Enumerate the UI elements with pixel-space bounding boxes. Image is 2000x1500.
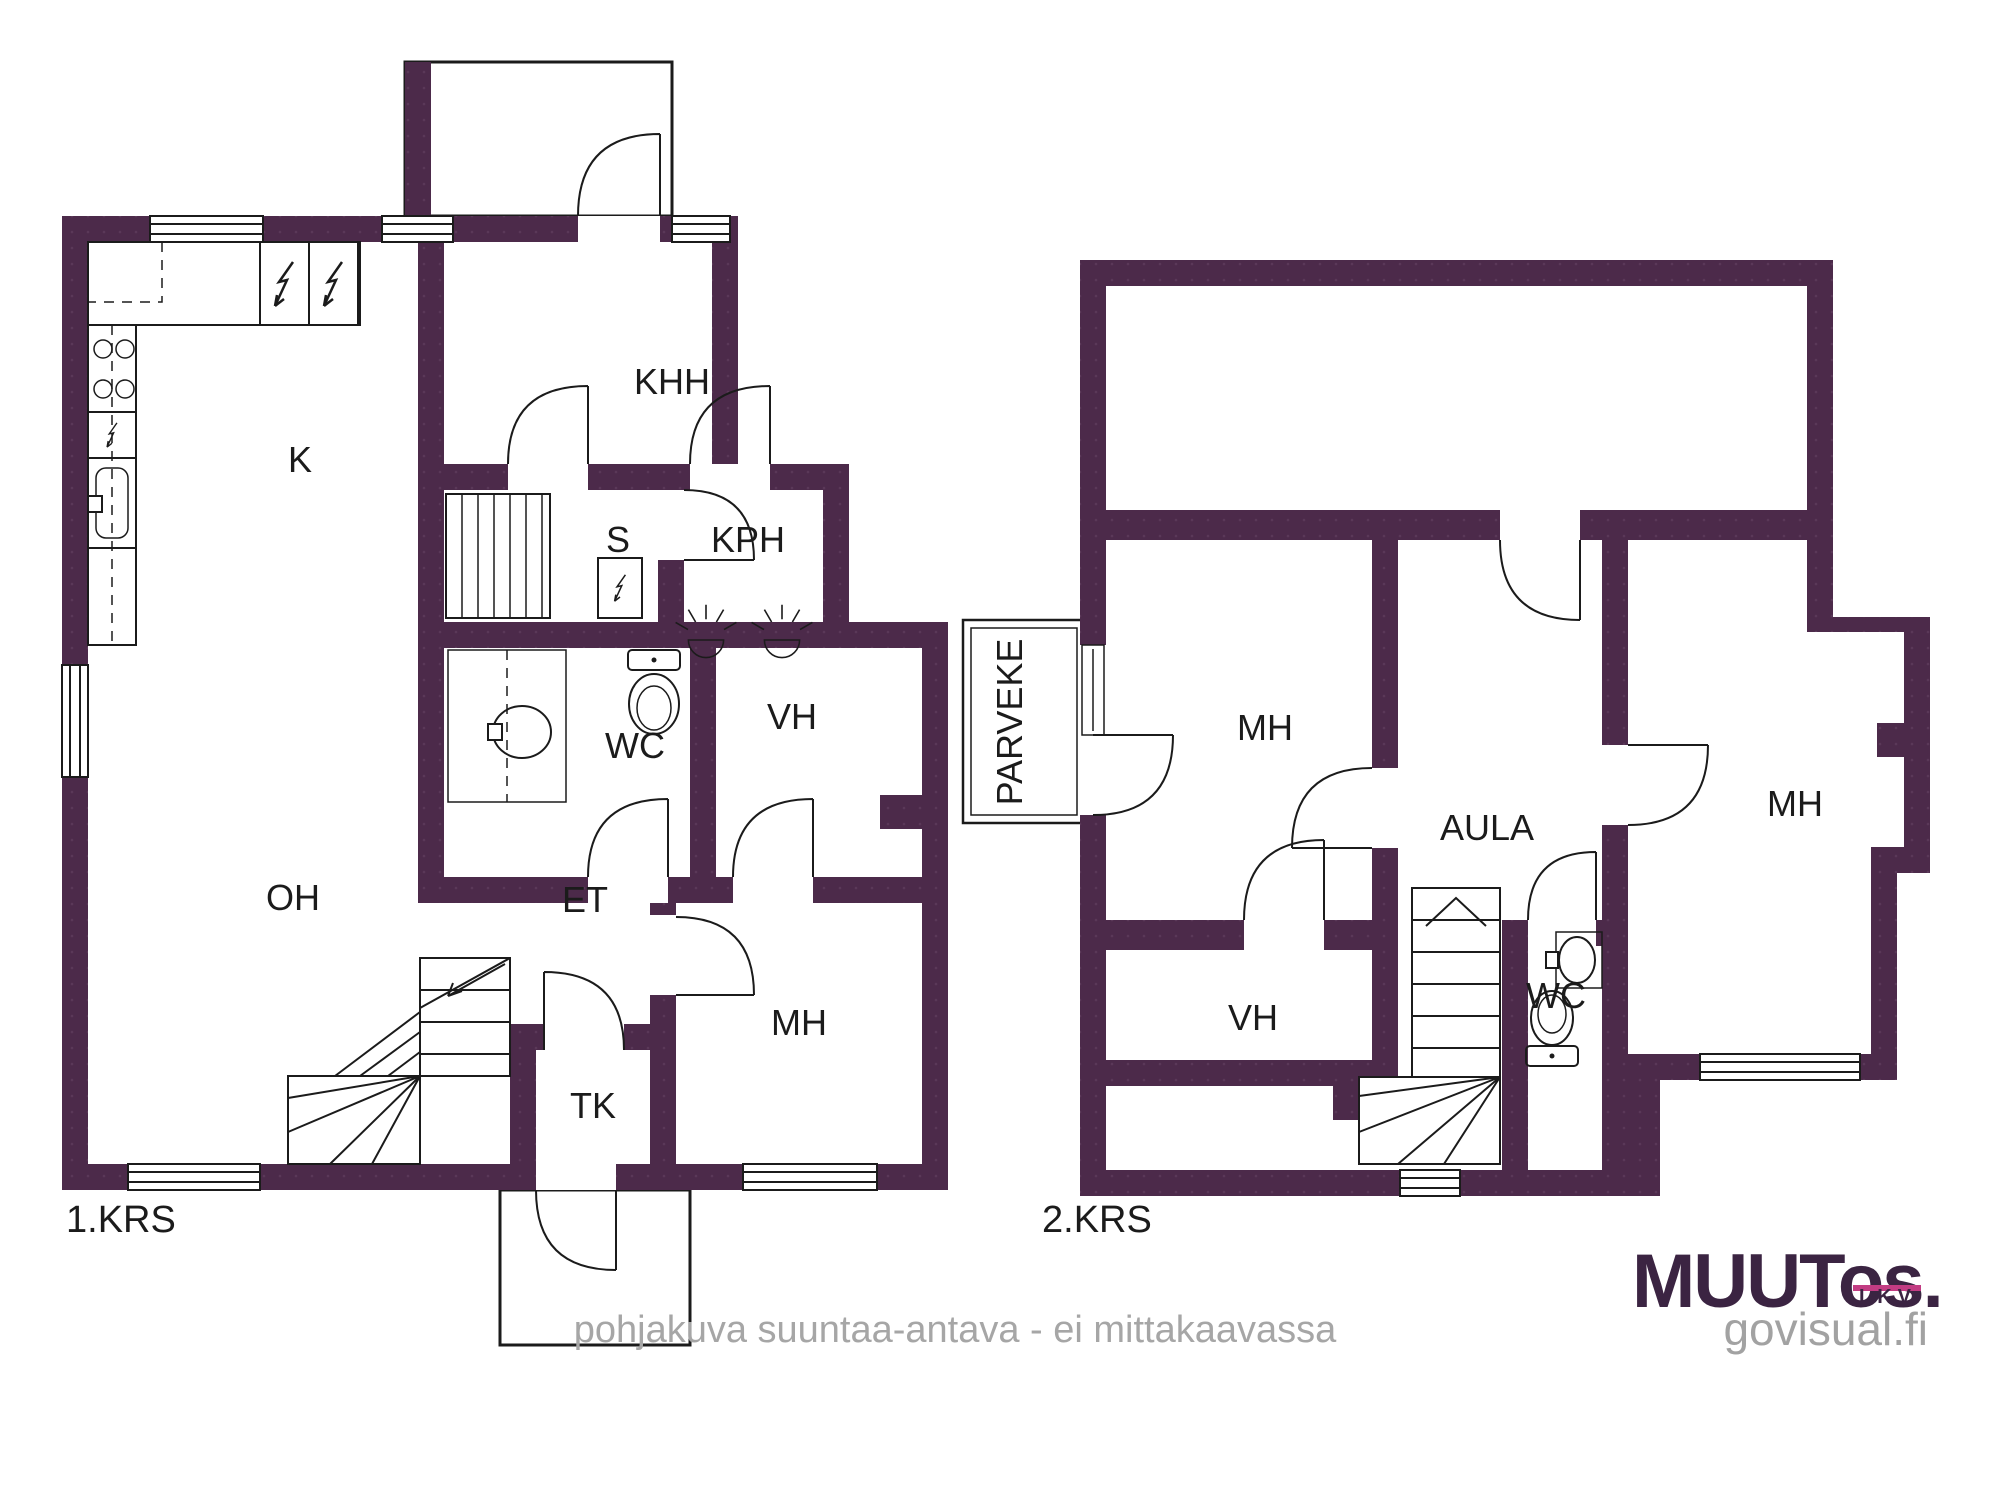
room-label-vh1: VH	[767, 696, 817, 737]
floor1-title: 1.KRS	[66, 1199, 176, 1241]
room-label-k: K	[288, 439, 312, 480]
room-label-mh2-left: MH	[1237, 707, 1293, 748]
window	[128, 1164, 260, 1190]
room-label-mh1: MH	[771, 1002, 827, 1043]
room-label-et: ET	[562, 879, 608, 920]
window	[1400, 1170, 1460, 1196]
window	[672, 216, 730, 242]
room-label-wc1: WC	[605, 725, 665, 766]
room-label-aula: AULA	[1440, 807, 1534, 848]
floorplan-canvas: K KHH S KPH WC VH OH ET MH TK 1.KRS	[0, 0, 2000, 1500]
floor1-plan: K KHH S KPH WC VH OH ET MH TK 1.KRS	[62, 62, 948, 1345]
balcony-door-panel	[1082, 645, 1104, 735]
window	[1700, 1054, 1860, 1080]
room-label-vh2: VH	[1228, 997, 1278, 1038]
logo: MUUTos. LKV govisual.fi	[1632, 1239, 1942, 1355]
window	[62, 665, 88, 777]
window	[150, 216, 263, 242]
room-label-khh: KHH	[634, 361, 710, 402]
floorplan-page: K KHH S KPH WC VH OH ET MH TK 1.KRS	[0, 0, 2000, 1500]
room-label-tk: TK	[570, 1085, 616, 1126]
room-label-mh2-right: MH	[1767, 783, 1823, 824]
room-label-oh: OH	[266, 877, 320, 918]
room-label-wc2: WC	[1526, 975, 1586, 1016]
window	[743, 1164, 877, 1190]
logo-site: govisual.fi	[1723, 1303, 1928, 1355]
footer-note: pohjakuva suuntaa-antava - ei mittakaava…	[574, 1309, 1337, 1351]
entrance-porch-top	[405, 62, 672, 216]
window	[382, 216, 453, 242]
floor2-plan: PARVEKE MH AULA WC VH MH 2.KRS	[963, 260, 1930, 1241]
room-label-parveke: PARVEKE	[989, 639, 1030, 806]
floor2-title: 2.KRS	[1042, 1199, 1152, 1241]
room-label-kph: KPH	[711, 519, 785, 560]
room-label-s: S	[606, 519, 630, 560]
